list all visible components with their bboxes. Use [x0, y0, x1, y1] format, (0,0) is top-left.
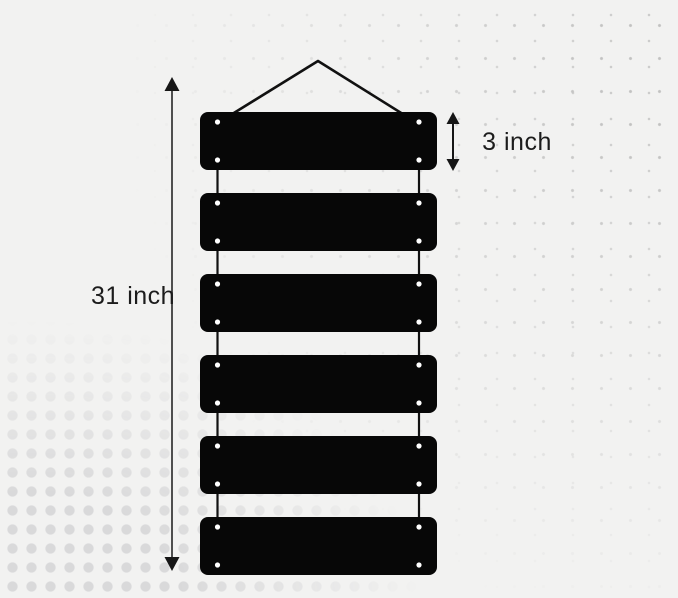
hole-icon	[416, 319, 421, 324]
slat-board	[200, 274, 437, 332]
hole-icon	[416, 157, 421, 162]
slat-boards	[200, 112, 437, 575]
hole-icon	[215, 524, 220, 529]
total-height-dimension: 31 inch	[91, 77, 180, 571]
hole-icon	[416, 481, 421, 486]
hole-icon	[416, 400, 421, 405]
product-dimension-diagram: 31 inch 3 inch	[0, 0, 678, 598]
slat-board	[200, 517, 437, 575]
hole-icon	[416, 119, 421, 124]
hole-icon	[215, 200, 220, 205]
hole-icon	[416, 200, 421, 205]
slat-board	[200, 436, 437, 494]
hole-icon	[416, 238, 421, 243]
arrow-down-icon	[165, 557, 180, 571]
slat-holes	[215, 119, 422, 567]
hole-icon	[416, 562, 421, 567]
slat-height-dimension: 3 inch	[447, 112, 552, 171]
arrow-down-icon	[447, 159, 460, 171]
hole-icon	[215, 119, 220, 124]
hole-icon	[416, 443, 421, 448]
total-height-label: 31 inch	[91, 282, 175, 310]
hole-icon	[215, 400, 220, 405]
hole-icon	[416, 362, 421, 367]
slat-board	[200, 193, 437, 251]
hole-icon	[215, 481, 220, 486]
hole-icon	[215, 319, 220, 324]
hole-icon	[215, 238, 220, 243]
hole-icon	[215, 562, 220, 567]
hanging-string	[229, 61, 406, 116]
hole-icon	[416, 281, 421, 286]
hole-icon	[215, 281, 220, 286]
arrow-up-icon	[447, 112, 460, 124]
slat-board	[200, 112, 437, 170]
hole-icon	[416, 524, 421, 529]
sign-board-diagram: 31 inch 3 inch	[0, 0, 678, 598]
arrow-up-icon	[165, 77, 180, 91]
hole-icon	[215, 362, 220, 367]
slat-board	[200, 355, 437, 413]
hole-icon	[215, 443, 220, 448]
slat-height-label: 3 inch	[482, 128, 552, 156]
hole-icon	[215, 157, 220, 162]
